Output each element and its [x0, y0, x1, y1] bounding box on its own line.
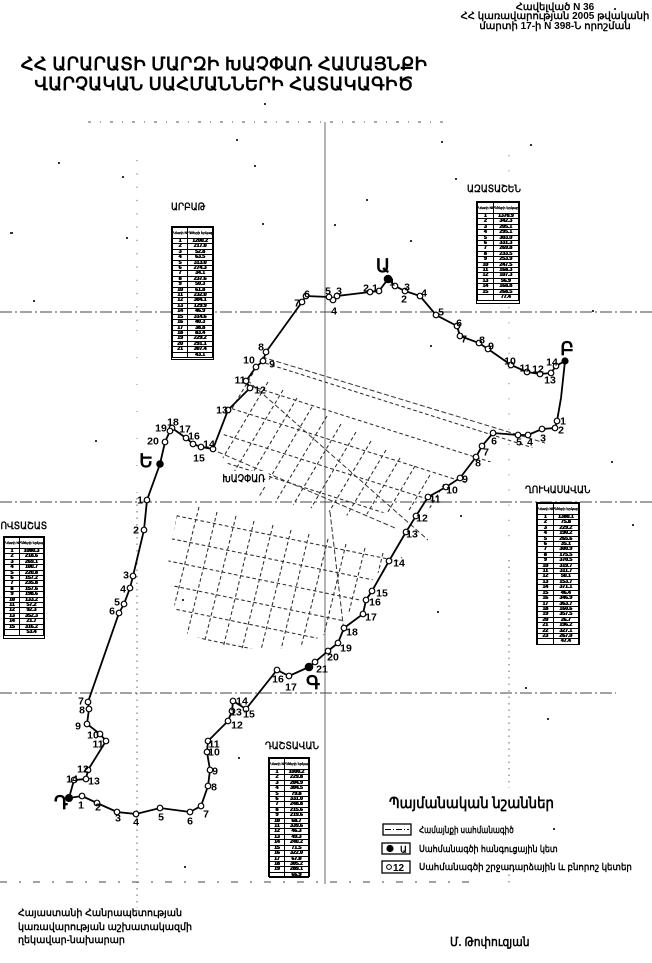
svg-text:17: 17: [285, 682, 297, 694]
svg-text:7: 7: [483, 447, 489, 459]
svg-text:2: 2: [133, 525, 139, 537]
svg-text:4: 4: [527, 437, 533, 449]
svg-text:8: 8: [79, 705, 85, 717]
svg-text:3: 3: [540, 433, 546, 445]
svg-text:12: 12: [416, 513, 428, 525]
svg-text:12: 12: [393, 863, 405, 874]
svg-text:6: 6: [304, 289, 310, 301]
svg-text:18: 18: [346, 627, 358, 639]
svg-text:Բ: Բ: [560, 338, 574, 359]
svg-text:6: 6: [491, 436, 497, 448]
svg-text:5: 5: [158, 812, 164, 824]
svg-text:16: 16: [272, 674, 284, 686]
svg-text:19: 19: [340, 643, 352, 655]
svg-text:8: 8: [479, 335, 485, 347]
svg-text:8: 8: [211, 782, 217, 794]
svg-text:13: 13: [230, 707, 242, 719]
svg-text:1: 1: [372, 283, 378, 295]
svg-text:10: 10: [504, 356, 516, 368]
svg-text:Ա: Ա: [376, 255, 390, 276]
svg-text:15: 15: [193, 453, 205, 465]
svg-text:13: 13: [544, 375, 556, 387]
svg-text:8: 8: [258, 342, 264, 354]
svg-text:7: 7: [294, 298, 300, 310]
svg-text:6: 6: [456, 318, 462, 330]
svg-text:17: 17: [179, 424, 191, 436]
svg-text:13: 13: [88, 776, 100, 788]
svg-text:11: 11: [519, 363, 530, 375]
svg-text:11: 11: [208, 739, 219, 751]
svg-text:5: 5: [114, 597, 120, 609]
svg-text:4: 4: [331, 306, 337, 318]
svg-text:20: 20: [327, 652, 339, 664]
svg-text:9: 9: [212, 766, 218, 778]
svg-text:5: 5: [438, 307, 444, 319]
svg-text:16: 16: [369, 597, 381, 609]
svg-text:13: 13: [216, 405, 228, 417]
svg-text:5: 5: [516, 437, 522, 449]
svg-text:8: 8: [475, 458, 481, 470]
svg-text:1: 1: [137, 495, 143, 507]
svg-text:14: 14: [203, 439, 215, 451]
svg-text:10: 10: [243, 355, 255, 367]
svg-text:11: 11: [92, 739, 103, 751]
svg-text:12: 12: [231, 720, 243, 732]
svg-text:14: 14: [546, 357, 558, 369]
svg-text:12: 12: [532, 364, 544, 376]
svg-text:17: 17: [365, 612, 377, 624]
svg-text:13: 13: [406, 529, 418, 541]
svg-text:2: 2: [95, 802, 101, 814]
svg-text:6: 6: [187, 816, 193, 828]
svg-text:9: 9: [75, 721, 81, 733]
svg-text:Ե: Ե: [139, 450, 153, 471]
svg-text:3: 3: [115, 813, 121, 825]
svg-text:11: 11: [429, 494, 440, 506]
svg-text:1: 1: [78, 800, 84, 812]
svg-text:14: 14: [393, 558, 405, 570]
svg-text:3: 3: [123, 570, 129, 582]
svg-text:3: 3: [336, 286, 342, 298]
svg-text:14: 14: [66, 774, 78, 786]
svg-text:4: 4: [120, 584, 126, 596]
svg-text:19: 19: [155, 423, 167, 435]
svg-text:Դ: Դ: [54, 792, 69, 813]
svg-text:9: 9: [488, 341, 494, 353]
svg-text:Ա: Ա: [400, 845, 407, 855]
svg-text:14: 14: [236, 696, 248, 708]
svg-text:12: 12: [254, 385, 266, 397]
svg-text:2: 2: [558, 425, 564, 437]
svg-text:5: 5: [325, 286, 331, 298]
svg-text:2: 2: [401, 294, 407, 306]
svg-text:9: 9: [462, 474, 468, 486]
svg-text:18: 18: [167, 417, 179, 429]
svg-text:4: 4: [133, 817, 139, 829]
svg-text:12: 12: [77, 764, 89, 776]
svg-text:9: 9: [269, 359, 275, 371]
svg-text:7: 7: [203, 809, 209, 821]
svg-text:4: 4: [421, 288, 427, 300]
svg-text:1: 1: [389, 277, 395, 289]
svg-text:10: 10: [446, 485, 458, 497]
svg-text:2: 2: [363, 283, 369, 295]
svg-text:6: 6: [109, 606, 115, 618]
svg-text:20: 20: [147, 436, 159, 448]
svg-text:15: 15: [243, 709, 255, 721]
svg-text:3: 3: [404, 282, 410, 294]
svg-text:11: 11: [234, 375, 245, 387]
svg-text:Գ: Գ: [306, 672, 321, 693]
svg-text:7: 7: [461, 334, 467, 346]
